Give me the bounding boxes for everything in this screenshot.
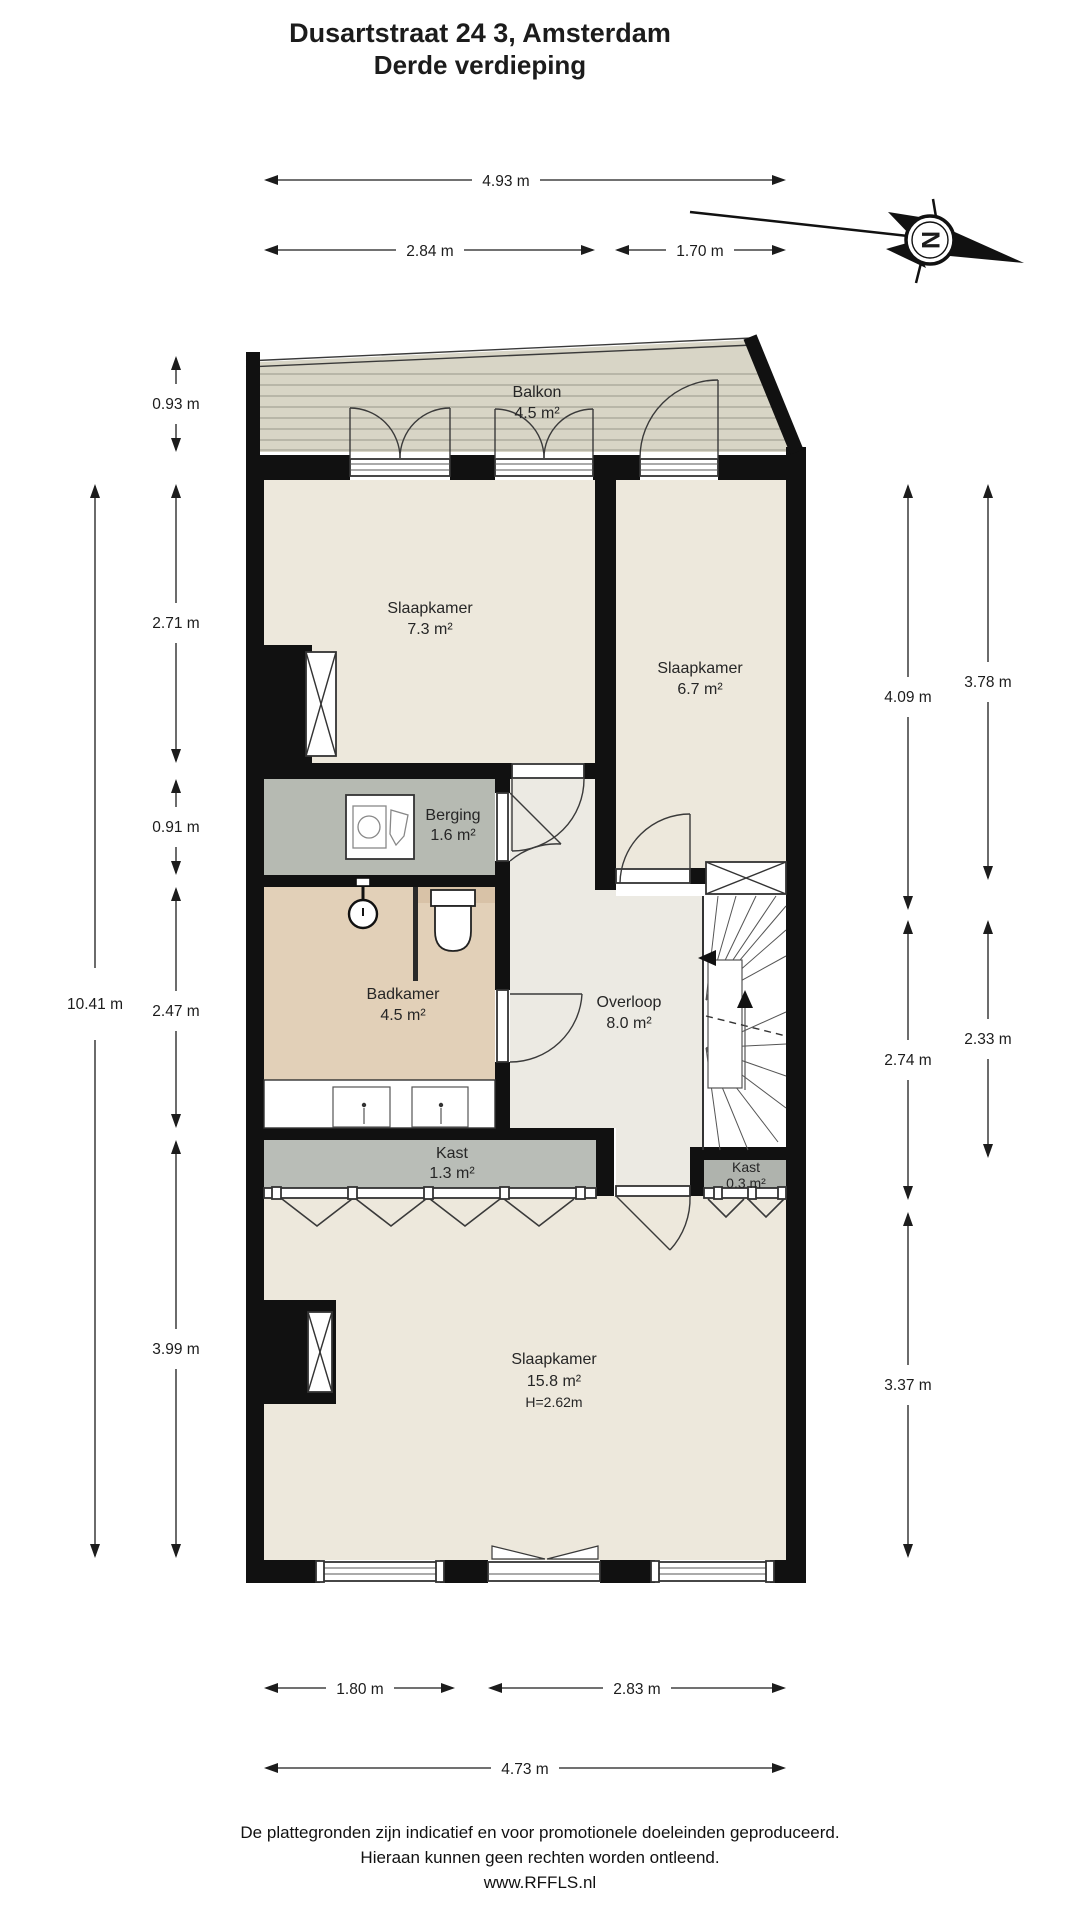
vanity-unit [264,1080,495,1128]
dim-left-4: 3.99 m [152,1140,199,1558]
dim-left-3: 2.47 m [152,887,199,1128]
svg-text:Berging: Berging [425,807,480,824]
svg-text:10.41 m: 10.41 m [67,996,123,1013]
svg-text:15.8 m²: 15.8 m² [527,1373,582,1390]
balcony-door-sill-mid [495,459,593,476]
svg-text:1.6 m²: 1.6 m² [430,827,476,844]
address-title: Dusartstraat 24 3, Amsterdam [289,18,671,48]
svg-text:1.70 m: 1.70 m [676,243,723,260]
dim-right-0: 4.09 m [884,484,931,910]
dim-right-outer-1: 2.33 m [964,920,1011,1158]
dim-left-total: 10.41 m [67,484,123,1558]
disclaimer-line2: Hieraan kunnen geen rechten worden ontle… [360,1848,719,1867]
toilet-icon [431,890,475,951]
svg-text:1.80 m: 1.80 m [336,1681,383,1698]
svg-text:7.3 m²: 7.3 m² [407,621,453,638]
dim-top-left: 2.84 m [264,243,595,260]
dim-bottom-right: 2.83 m [488,1681,786,1698]
svg-text:8.0 m²: 8.0 m² [606,1015,652,1032]
svg-text:2.84 m: 2.84 m [406,243,453,260]
website-link: www.RFFLS.nl [483,1873,596,1892]
svg-text:0.93 m: 0.93 m [152,396,199,413]
bathroom-partition [413,887,418,981]
stair-newel-strip [708,960,742,1088]
basin-left-icon [333,1087,390,1127]
page-title: Dusartstraat 24 3, Amsterdam Derde verdi… [289,18,671,80]
dim-top-total: 4.93 m [264,173,786,190]
floor-subtitle: Derde verdieping [374,50,586,80]
svg-text:3.99 m: 3.99 m [152,1341,199,1358]
svg-text:4.73 m: 4.73 m [501,1761,548,1778]
svg-text:4.5 m²: 4.5 m² [380,1007,426,1024]
washing-machine-icon [346,795,414,859]
svg-text:Overloop: Overloop [597,994,662,1011]
chimney-block-upper [264,645,312,763]
svg-text:Slaapkamer: Slaapkamer [511,1351,597,1368]
room-slaapkamer-158-floor [264,1196,786,1560]
svg-text:Slaapkamer: Slaapkamer [657,660,743,677]
footer-disclaimer: De plattegronden zijn indicatief en voor… [240,1823,839,1892]
compass-north-icon: N [690,199,1024,283]
chimney-shaft-upper-icon [306,652,336,756]
stair-shaft-icon [706,862,786,894]
svg-text:H=2.62m: H=2.62m [525,1394,582,1410]
svg-text:4.93 m: 4.93 m [482,173,529,190]
dim-bottom-total: 4.73 m [264,1761,786,1778]
dim-left-1: 2.71 m [152,484,199,763]
basin-right-icon [412,1087,468,1127]
svg-text:3.37 m: 3.37 m [884,1377,931,1394]
chimney-shaft-lower-icon [308,1312,332,1392]
svg-text:2.83 m: 2.83 m [613,1681,660,1698]
door-sill-overloop-bedroom [616,1186,690,1196]
dim-right-2: 3.37 m [884,1212,931,1558]
svg-text:3.78 m: 3.78 m [964,674,1011,691]
svg-text:2.74 m: 2.74 m [884,1052,931,1069]
svg-text:4.09 m: 4.09 m [884,689,931,706]
floorplan-page: Dusartstraat 24 3, Amsterdam Derde verdi… [0,0,1080,1920]
kast13-sill [264,1187,596,1199]
dim-bottom-left: 1.80 m [264,1681,455,1698]
window-bottom-right [651,1561,774,1582]
window-bottom-left [316,1561,444,1582]
door-sill-berging [497,793,508,861]
svg-text:Kast: Kast [436,1145,469,1162]
svg-text:Balkon: Balkon [513,384,562,401]
dim-right-1: 2.74 m [884,920,931,1200]
svg-text:6.7 m²: 6.7 m² [677,681,723,698]
svg-text:2.47 m: 2.47 m [152,1003,199,1020]
dim-left-2: 0.91 m [152,779,199,875]
svg-text:2.71 m: 2.71 m [152,615,199,632]
door-sill-badkamer [497,990,508,1062]
dim-left-0: 0.93 m [152,356,199,452]
dim-right-outer-0: 3.78 m [964,484,1011,880]
dim-top-right: 1.70 m [615,243,786,260]
door-sill-slaapkamer73 [512,764,584,778]
svg-text:4.5 m²: 4.5 m² [514,405,560,422]
svg-text:0.3 m²: 0.3 m² [726,1175,766,1191]
svg-text:0.91 m: 0.91 m [152,819,199,836]
svg-text:Slaapkamer: Slaapkamer [387,600,473,617]
svg-text:N: N [916,231,944,249]
svg-text:2.33 m: 2.33 m [964,1031,1011,1048]
door-sill-slaapkamer67 [616,869,690,883]
svg-text:1.3 m²: 1.3 m² [429,1165,475,1182]
balcony-door-sill-left [350,459,450,476]
floorplan-canvas: Dusartstraat 24 3, Amsterdam Derde verdi… [0,0,1080,1920]
disclaimer-line1: De plattegronden zijn indicatief en voor… [240,1823,839,1842]
balcony-door-sill-right [640,459,718,476]
svg-text:Badkamer: Badkamer [367,986,441,1003]
svg-text:Kast: Kast [732,1159,760,1175]
